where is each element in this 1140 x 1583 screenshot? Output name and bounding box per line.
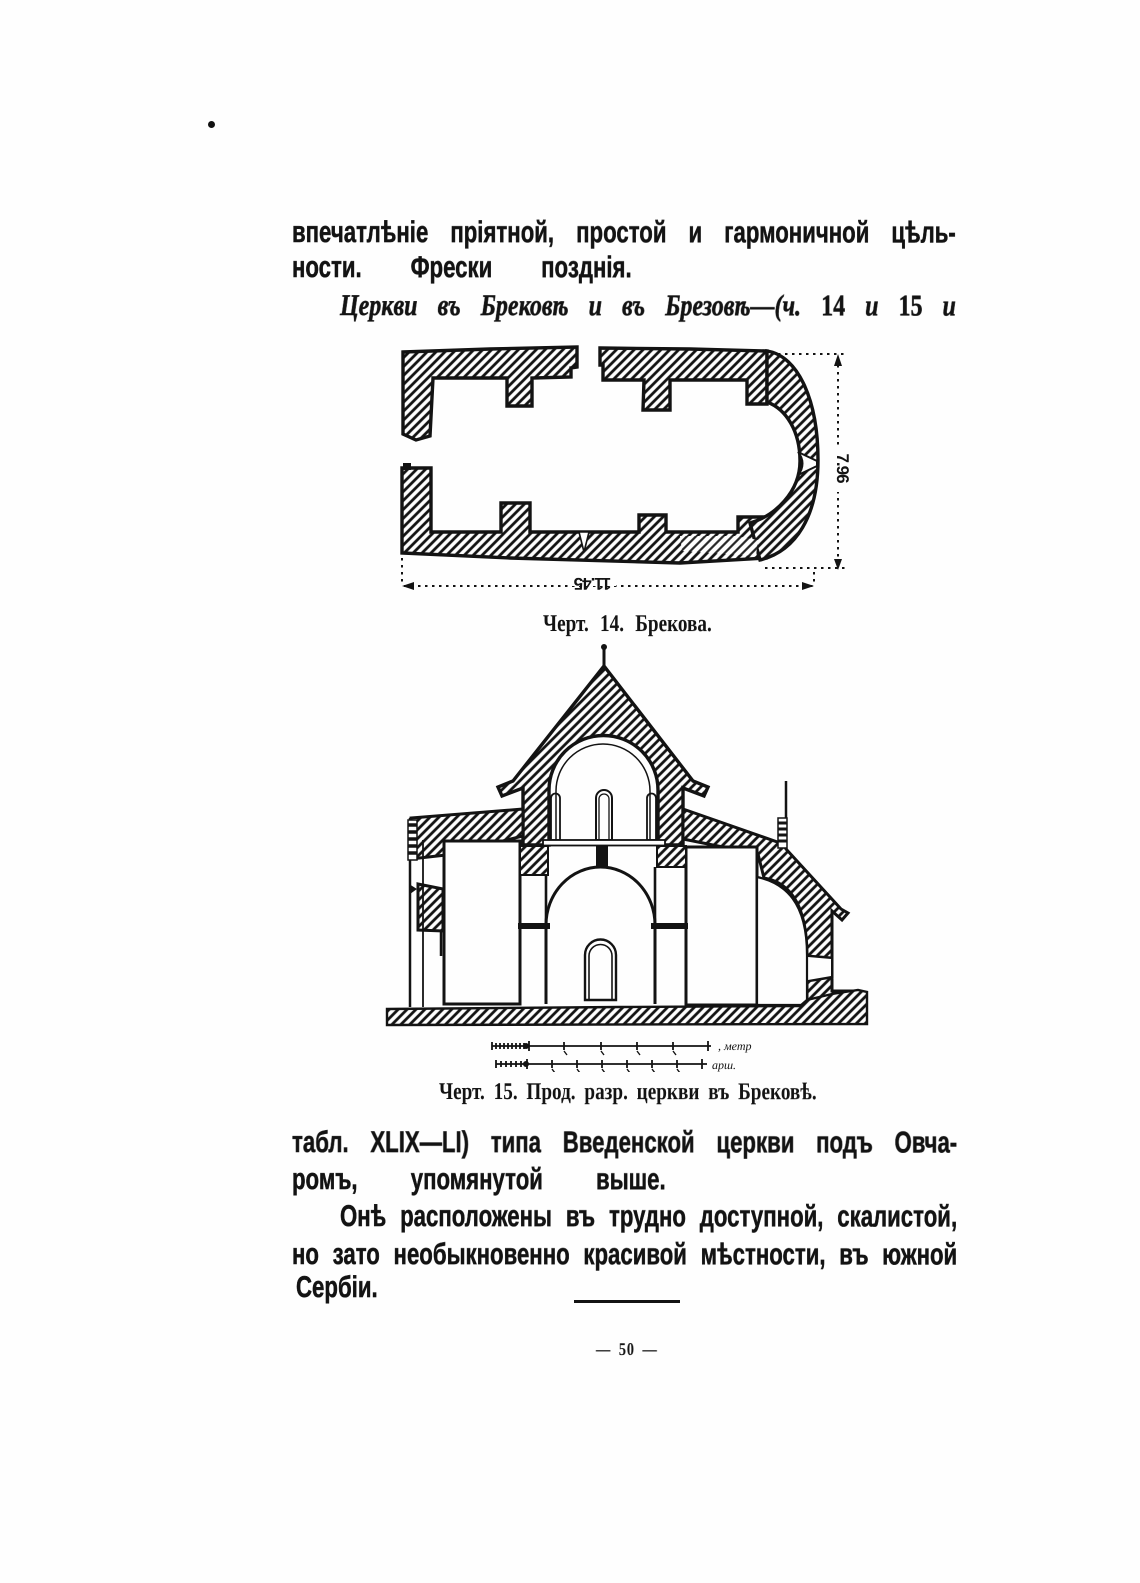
svg-text:11.45: 11.45 [574, 574, 611, 593]
svg-text:7.96: 7.96 [833, 453, 852, 483]
svg-text:, метр: , метр [718, 1039, 752, 1053]
svg-text:арш.: арш. [712, 1058, 736, 1072]
